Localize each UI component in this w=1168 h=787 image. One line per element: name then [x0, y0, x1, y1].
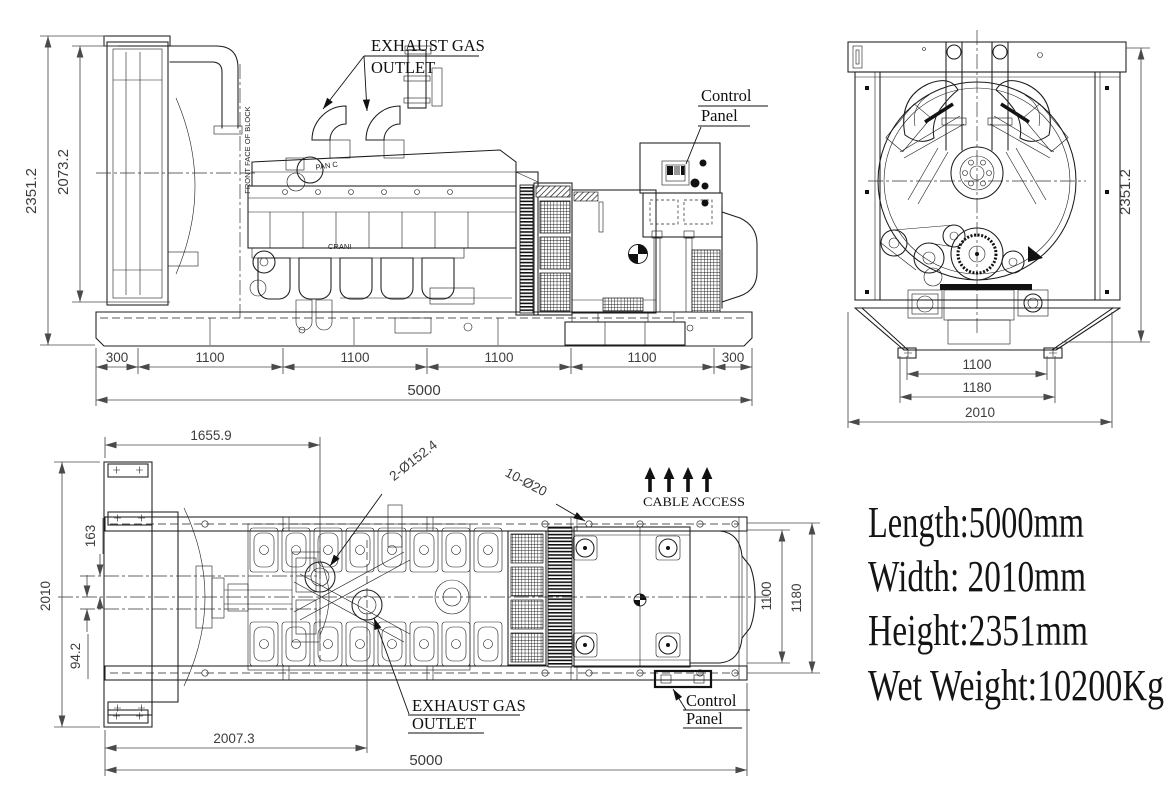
dim-plan-fan-offset: 163: [83, 525, 98, 548]
cable-access-arrow-4: [702, 467, 713, 492]
dim-plan-front-face: 1655.9: [190, 428, 231, 443]
plan-engine: [248, 505, 502, 670]
dim-end-width-overall: 2010: [965, 405, 995, 420]
drawing-sheet: FRONT FACE OF BLOCK: [0, 0, 1168, 787]
dim-side-1100-3: 1100: [484, 350, 513, 365]
cg-symbol-plan: [634, 594, 646, 606]
exhaust-elbow-left: [312, 106, 346, 140]
dim-side-height-inner: 2073.2: [55, 149, 72, 195]
end-view: 2351.2 1100 1180 2010: [848, 30, 1150, 428]
dim-plan-length-overall: 5000: [409, 752, 442, 769]
end-engine: [881, 81, 1068, 344]
cable-access-arrow-1: [645, 467, 656, 492]
plan-base-rails: [105, 517, 747, 680]
cable-access-arrow-2: [664, 467, 675, 492]
side-base-skid: [96, 312, 752, 346]
marking-pan: PAN C: [315, 159, 339, 171]
label-plan-control-line2: Panel: [686, 709, 723, 728]
spec-height: Height:2351mm: [868, 606, 1088, 655]
side-view: FRONT FACE OF BLOCK: [23, 36, 768, 406]
dim-end-base-inner: 1100: [962, 357, 991, 372]
dim-side-300-left: 300: [106, 350, 129, 365]
genset-dimension-drawing: FRONT FACE OF BLOCK: [0, 0, 1168, 787]
end-enclosure: [848, 42, 1126, 300]
spec-length: Length:5000mm: [868, 498, 1084, 547]
label-side-exhaust-line2: OUTLET: [371, 58, 435, 77]
side-view-labels: EXHAUST GAS OUTLET Control Panel: [323, 36, 768, 164]
spec-block: Length:5000mm Width: 2010mm Height:2351m…: [868, 498, 1164, 710]
label-plan-control-line1: Control: [686, 691, 737, 710]
dim-side-height-overall: 2351.2: [23, 168, 40, 214]
dim-side-1100-4: 1100: [627, 350, 656, 365]
dim-plan-crank-offset: 94.2: [68, 643, 83, 669]
dim-side-length-overall: 5000: [407, 382, 440, 399]
spec-width: Width: 2010mm: [868, 552, 1086, 601]
label-cable-access: CABLE ACCESS: [643, 494, 745, 509]
label-side-control-line2: Panel: [701, 106, 738, 125]
dim-end-height-overall: 2351.2: [1117, 169, 1134, 215]
cable-access: CABLE ACCESS: [643, 467, 745, 509]
dim-end-base-outer: 1180: [962, 380, 991, 395]
dim-side-300-right: 300: [722, 350, 745, 365]
dim-side-1100-2: 1100: [340, 350, 369, 365]
cable-access-arrow-3: [683, 467, 694, 492]
exhaust-elbow-right: [366, 106, 400, 140]
marking-crani: CRANI: [328, 242, 351, 251]
dim-plan-outlet-position: 2007.3: [213, 731, 254, 746]
cg-symbol-side: [629, 245, 648, 264]
end-base-skirt: [855, 300, 1120, 358]
dim-side-1100-1: 1100: [195, 350, 224, 365]
side-radiator: [96, 36, 258, 305]
label-side-control-line1: Control: [701, 86, 752, 105]
dim-plan-base-inner: 1100: [759, 581, 774, 610]
side-alternator: [516, 172, 757, 345]
dim-plan-base-outer: 1180: [789, 583, 804, 612]
side-engine: PAN C CRANI: [248, 46, 516, 330]
dim-plan-width-overall: 2010: [38, 581, 53, 611]
label-plan-exhaust-holes: 2-Ø152.4: [386, 437, 440, 484]
label-plan-exhaust-line2: OUTLET: [412, 714, 476, 733]
spec-wet-weight: Wet Weight:10200Kg: [868, 661, 1164, 710]
label-front-face-of-block: FRONT FACE OF BLOCK: [243, 106, 252, 193]
plan-alternator: [508, 527, 755, 687]
label-plan-mounting-holes: 10-Ø20: [503, 465, 550, 499]
plan-view: 1655.9 2010 163 94.2 2007.3 5000 1100 11…: [38, 428, 820, 776]
label-plan-exhaust-line1: EXHAUST GAS: [412, 696, 526, 715]
label-side-exhaust-line1: EXHAUST GAS: [371, 36, 485, 55]
plan-radiator: [104, 462, 329, 727]
